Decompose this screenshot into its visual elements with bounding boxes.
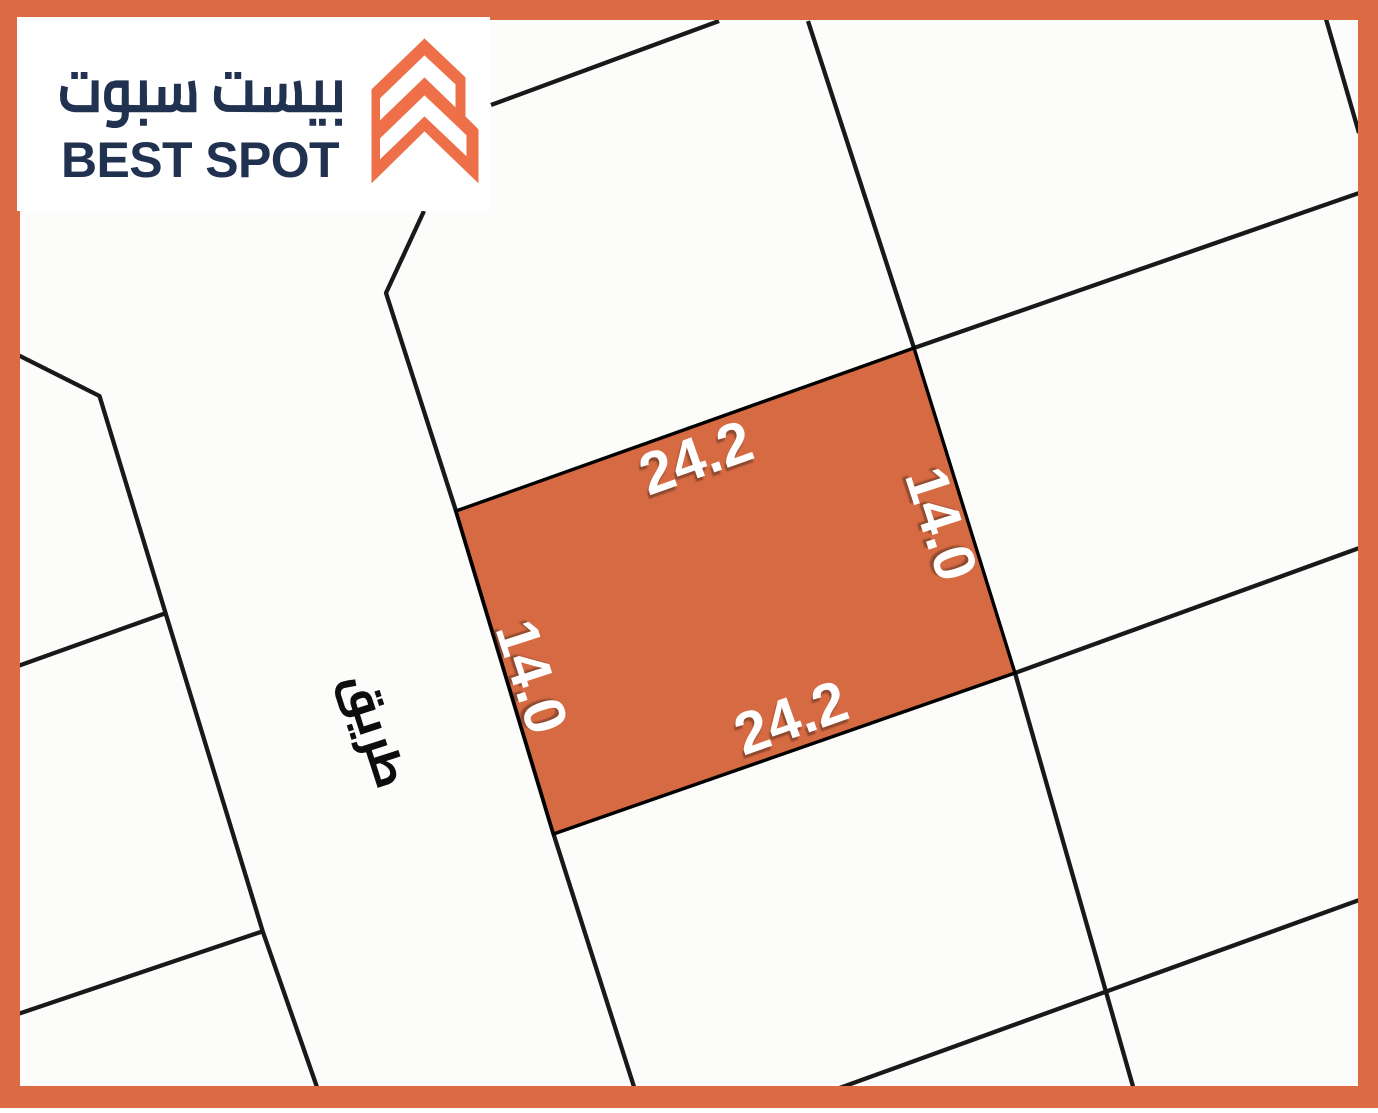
svg-text:BEST SPOT: BEST SPOT	[61, 132, 339, 188]
